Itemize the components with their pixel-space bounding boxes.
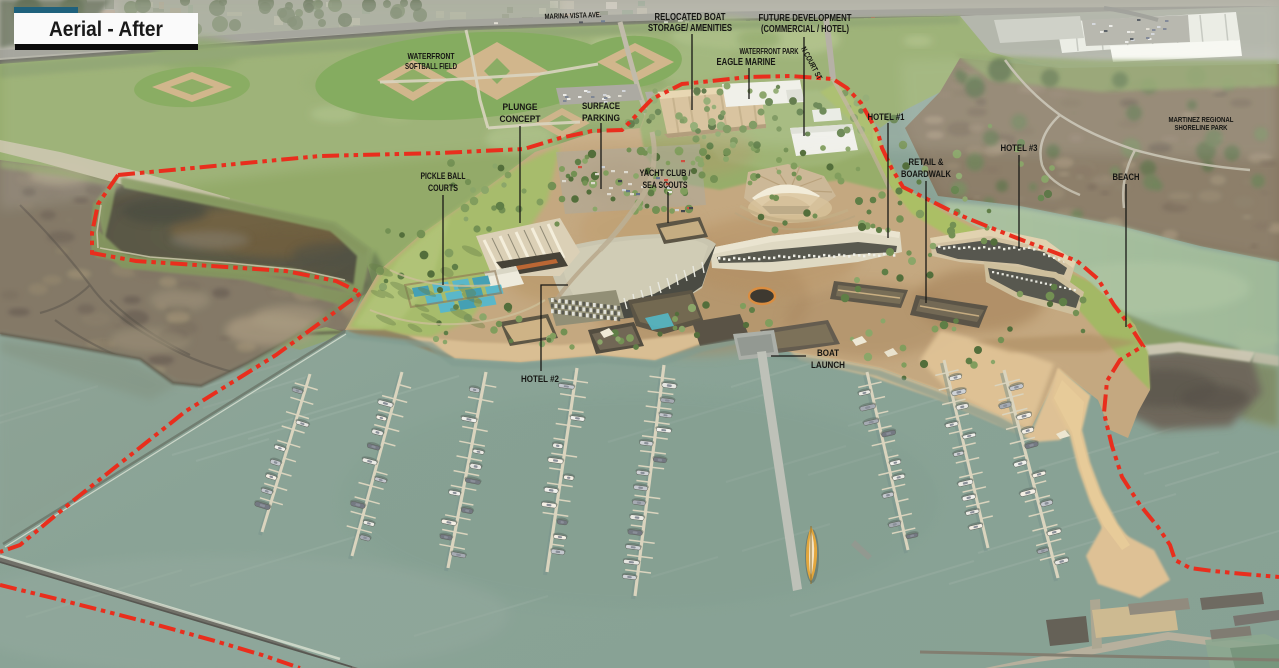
- svg-text:BOAT: BOAT: [817, 348, 839, 358]
- svg-text:CONCEPT: CONCEPT: [500, 114, 541, 124]
- svg-text:HOTEL #1: HOTEL #1: [868, 112, 905, 122]
- svg-text:Aerial - After: Aerial - After: [49, 18, 163, 41]
- svg-text:STORAGE/ AMENITIES: STORAGE/ AMENITIES: [648, 23, 732, 34]
- svg-text:RELOCATED BOAT: RELOCATED BOAT: [655, 12, 726, 23]
- svg-text:(COMMERCIAL / HOTEL): (COMMERCIAL / HOTEL): [761, 24, 849, 35]
- svg-text:SEA SCOUTS: SEA SCOUTS: [643, 180, 688, 190]
- svg-text:COURTS: COURTS: [428, 183, 458, 193]
- svg-text:LAUNCH: LAUNCH: [811, 360, 845, 370]
- svg-text:SOFTBALL FIELD: SOFTBALL FIELD: [405, 61, 457, 71]
- svg-text:EAGLE MARINE: EAGLE MARINE: [717, 57, 776, 68]
- svg-text:FUTURE DEVELOPMENT: FUTURE DEVELOPMENT: [759, 13, 852, 24]
- svg-text:SURFACE: SURFACE: [582, 101, 620, 111]
- svg-text:PLUNGE: PLUNGE: [503, 102, 538, 112]
- svg-text:WATERFRONT PARK: WATERFRONT PARK: [740, 47, 799, 56]
- svg-text:HOTEL #2: HOTEL #2: [521, 374, 559, 384]
- svg-text:PICKLE BALL: PICKLE BALL: [421, 171, 466, 181]
- svg-text:BOARDWALK: BOARDWALK: [901, 169, 951, 179]
- svg-text:PARKING: PARKING: [582, 113, 620, 123]
- svg-text:SHORELINE PARK: SHORELINE PARK: [1175, 123, 1228, 132]
- svg-text:WATERFRONT: WATERFRONT: [408, 51, 456, 61]
- svg-text:YACHT CLUB /: YACHT CLUB /: [640, 168, 691, 178]
- svg-text:BEACH: BEACH: [1113, 172, 1140, 182]
- svg-text:HOTEL #3: HOTEL #3: [1001, 143, 1038, 153]
- svg-text:RETAIL &: RETAIL &: [909, 157, 944, 167]
